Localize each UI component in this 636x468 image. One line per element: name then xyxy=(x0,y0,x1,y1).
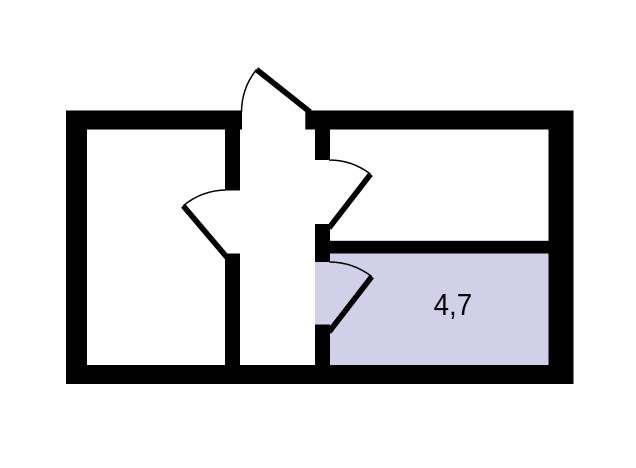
svg-text:4,7: 4,7 xyxy=(434,287,473,322)
